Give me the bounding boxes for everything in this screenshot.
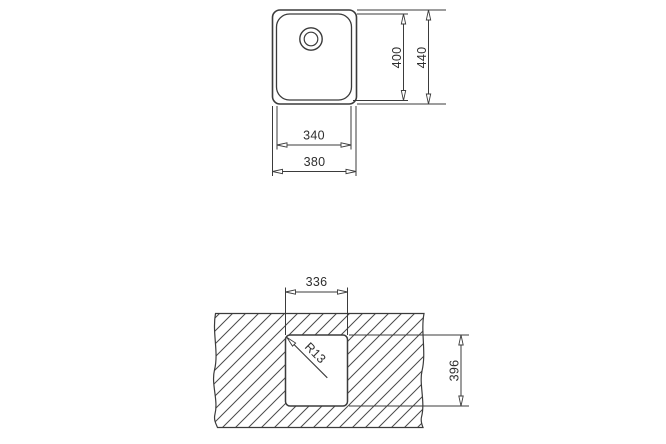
dim-cutout-depth: 396: [448, 335, 464, 406]
arrow-left-icon: [286, 290, 296, 294]
arrow-left-icon: [277, 143, 287, 147]
dim-label-cutout-depth: 396: [448, 360, 462, 382]
drain-outer-circle: [300, 28, 322, 50]
dim-label-bowl-depth: 400: [390, 47, 404, 69]
dim-bowl-depth: 400: [390, 14, 406, 101]
dim-label-bowl-width: 340: [303, 129, 325, 143]
sink-bowl: [277, 14, 352, 100]
dim-overall-width: 380: [273, 155, 357, 174]
sink-technical-drawing: 400 440 340: [0, 0, 666, 444]
arrow-right-icon: [346, 169, 356, 173]
arrow-up-icon: [459, 335, 463, 345]
drawing-canvas: 400 440 340: [0, 0, 666, 444]
drain-icon: [300, 28, 322, 50]
arrow-down-icon: [426, 94, 430, 104]
sink-top-view: 400 440 340: [273, 10, 447, 176]
drawing-root: 400 440 340: [214, 10, 469, 428]
drain-inner-circle: [304, 32, 318, 46]
dim-label-cutout-width: 336: [306, 275, 328, 289]
sink-outer-rim: [273, 10, 357, 104]
dim-overall-depth: 440: [415, 10, 431, 104]
arrow-down-icon: [459, 396, 463, 406]
dim-label-overall-depth: 440: [415, 47, 429, 69]
countertop-cutout-view: 336 396 R13: [214, 275, 469, 428]
arrow-up-icon: [426, 10, 430, 20]
dim-bowl-width: 340: [277, 129, 351, 148]
arrow-right-icon: [338, 290, 348, 294]
arrow-up-icon: [401, 14, 405, 24]
arrow-right-icon: [341, 143, 351, 147]
dim-label-overall-width: 380: [304, 155, 326, 169]
arrow-down-icon: [401, 91, 405, 101]
arrow-left-icon: [273, 169, 283, 173]
dim-cutout-width: 336: [286, 275, 348, 294]
